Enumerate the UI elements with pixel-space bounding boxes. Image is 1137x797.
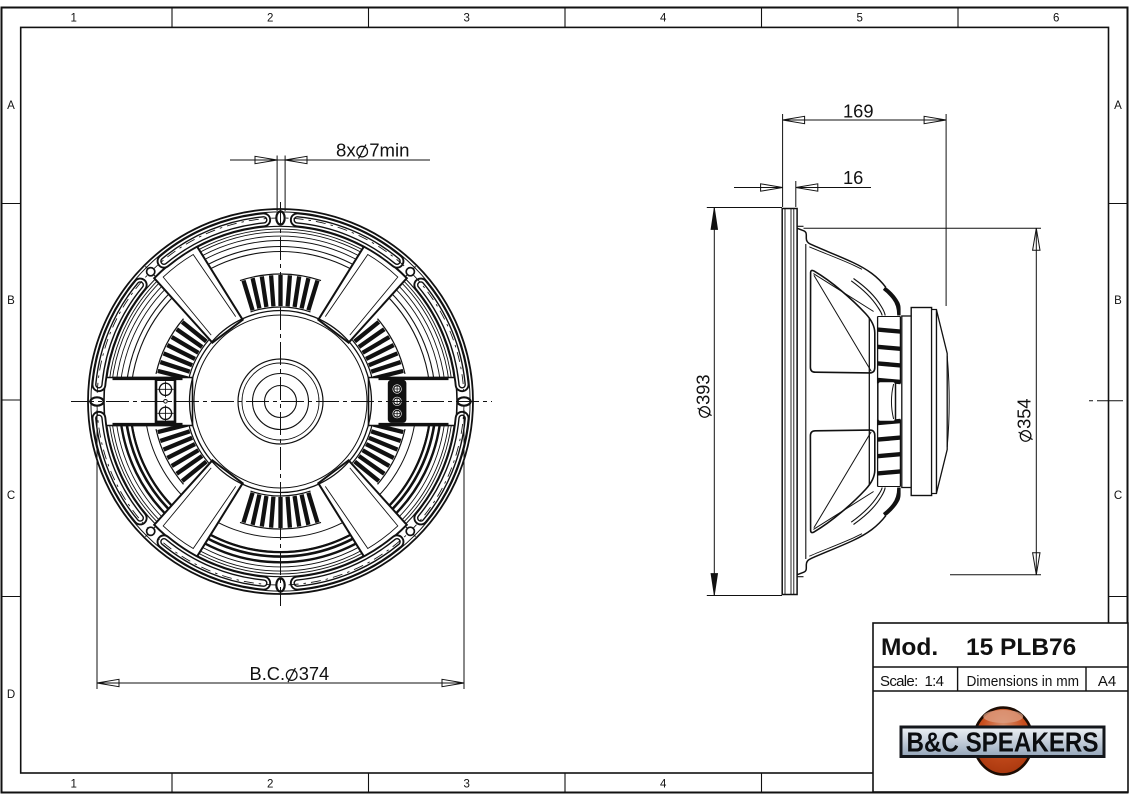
- svg-text:B&C SPEAKERS: B&C SPEAKERS: [907, 727, 1099, 758]
- svg-text:2: 2: [267, 13, 273, 25]
- svg-text:4: 4: [660, 779, 667, 791]
- svg-text:15 PLB76: 15 PLB76: [966, 634, 1076, 661]
- svg-text:Scale: 1:4: Scale: 1:4: [880, 673, 944, 690]
- svg-text:5: 5: [857, 13, 863, 25]
- svg-text:A: A: [1114, 100, 1122, 112]
- svg-text:7min: 7min: [369, 140, 409, 161]
- svg-text:3: 3: [464, 13, 470, 25]
- svg-text:16: 16: [843, 167, 863, 188]
- svg-text:D: D: [7, 689, 15, 701]
- svg-text:B: B: [7, 295, 15, 307]
- svg-text:8x: 8x: [336, 140, 356, 161]
- svg-text:B.C.: B.C.: [250, 663, 286, 684]
- svg-text:6: 6: [1053, 13, 1059, 25]
- svg-text:169: 169: [843, 101, 874, 122]
- svg-text:Mod.: Mod.: [881, 634, 938, 661]
- svg-text:B: B: [1114, 295, 1122, 307]
- svg-text:4: 4: [660, 13, 667, 25]
- svg-text:Dimensions in mm: Dimensions in mm: [967, 673, 1080, 690]
- svg-text:C: C: [1114, 490, 1122, 502]
- svg-text:1: 1: [71, 13, 77, 25]
- svg-text:354: 354: [1014, 398, 1035, 429]
- svg-text:A: A: [7, 100, 15, 112]
- svg-text:393: 393: [693, 374, 714, 405]
- svg-text:2: 2: [267, 779, 273, 791]
- svg-text:1: 1: [71, 779, 77, 791]
- svg-text:374: 374: [299, 663, 330, 684]
- svg-text:3: 3: [464, 779, 470, 791]
- svg-text:A4: A4: [1098, 673, 1116, 690]
- svg-text:C: C: [7, 490, 15, 502]
